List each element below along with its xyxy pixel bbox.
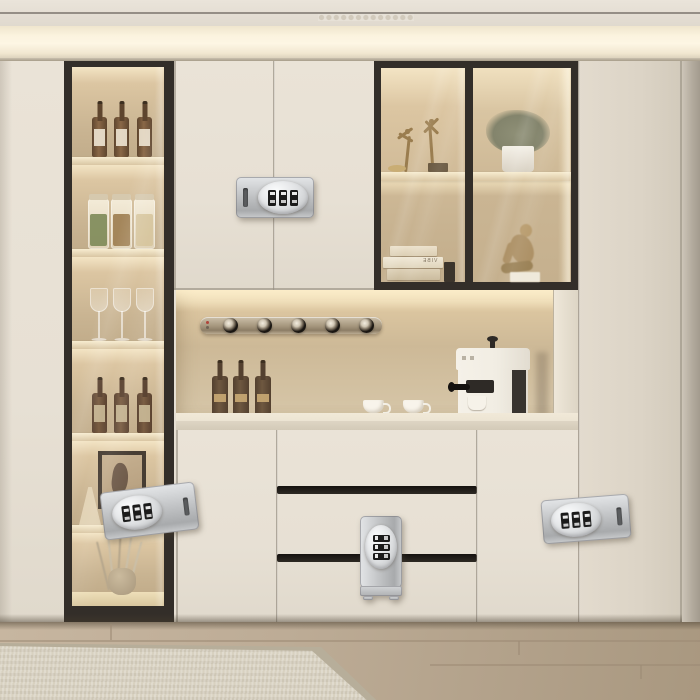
- door-seam: [476, 430, 478, 622]
- rail-detail-dots: [206, 321, 209, 324]
- shelf-board: [72, 157, 164, 165]
- niche-right-pillar: [553, 290, 578, 415]
- glass-stem: [98, 311, 100, 338]
- wine-bottle: [114, 117, 129, 157]
- storage-jar: [88, 199, 109, 249]
- lock-dial: [268, 190, 276, 206]
- glass-foot: [115, 338, 130, 341]
- counter-top: [176, 413, 578, 421]
- cove-light-strip: [0, 26, 700, 58]
- door-seam: [273, 61, 275, 290]
- plant-pot: [502, 146, 534, 172]
- group-head: [466, 380, 494, 393]
- jar-contents: [113, 214, 130, 246]
- wine-bottle: [137, 393, 152, 433]
- ceiling-bead-trim: [318, 14, 414, 21]
- lock-dial: [121, 505, 131, 522]
- wine-bottle: [137, 117, 152, 157]
- figurine-head: [405, 129, 410, 134]
- lock-dial: [132, 504, 142, 521]
- combination-lock-lower-right: [540, 494, 631, 545]
- lock-dial-face: [365, 525, 397, 569]
- glass-bowl: [113, 288, 131, 312]
- floor-plank-line: [430, 664, 700, 666]
- shelf-board: [72, 433, 164, 441]
- glass-foot: [92, 338, 107, 341]
- lock-dial: [571, 511, 580, 528]
- figurine-head: [429, 119, 434, 124]
- glass-stem: [121, 311, 123, 338]
- lock-foot: [360, 586, 402, 596]
- drawer-gap: [277, 486, 477, 494]
- figure-plinth: [510, 272, 540, 282]
- book: [390, 246, 437, 256]
- wine-glass: [136, 288, 154, 341]
- trinket-box: [428, 163, 448, 172]
- rail-knob: [325, 318, 340, 333]
- machine-wall-shadow: [536, 352, 548, 416]
- counter-front-edge: [176, 421, 578, 430]
- lock-dial: [279, 190, 287, 206]
- book-spine-text: VIBE: [422, 258, 437, 265]
- wall-rail: [200, 317, 382, 334]
- machine-top-knob: [487, 336, 498, 342]
- wine-bottle: [114, 393, 129, 433]
- wine-bottle: [92, 117, 107, 157]
- bookend: [444, 262, 455, 282]
- storage-jar: [134, 199, 155, 249]
- lock-dial: [373, 535, 390, 542]
- wine-bottle: [92, 393, 107, 433]
- rail-detail-dots: [206, 326, 209, 329]
- floor-plank-joint: [640, 665, 642, 679]
- drawer-stack-left-seam: [276, 430, 278, 622]
- storage-jar: [111, 199, 132, 249]
- book-stack: VIBE: [383, 246, 443, 282]
- book: [387, 269, 440, 280]
- rail-knob: [223, 318, 238, 333]
- lock-slot: [243, 188, 248, 207]
- glass-foot: [138, 338, 153, 341]
- photo-scene: VIBE: [0, 0, 700, 700]
- right-wall: [682, 61, 700, 638]
- book: VIBE: [383, 257, 443, 268]
- floor-plank-line: [0, 640, 700, 642]
- left-wall-shade: [0, 61, 12, 622]
- jar-contents: [136, 214, 153, 246]
- rail-knob: [257, 318, 272, 333]
- combination-lock-upper-center: [236, 177, 314, 218]
- wine-glass: [90, 288, 108, 341]
- shelf-board: [72, 341, 164, 349]
- rail-knob: [359, 318, 374, 333]
- lock-dial: [560, 512, 569, 529]
- lock-dial: [290, 190, 298, 206]
- floor-contact-shadow: [0, 622, 700, 630]
- machine-side-panel: [512, 370, 526, 418]
- machine-cup: [468, 396, 486, 410]
- lock-foot-tab: [363, 596, 373, 600]
- door-edge: [174, 61, 176, 290]
- shelf-board: [72, 249, 164, 257]
- lock-foot-tab: [389, 596, 399, 600]
- cup: [403, 400, 424, 413]
- jar-contents: [90, 214, 107, 246]
- lock-dial-face: [258, 181, 308, 214]
- shelf-underlight: [381, 181, 571, 196]
- lock-dial: [373, 544, 390, 551]
- combination-lock-lower-center: [360, 516, 402, 600]
- seated-figure-sculpture: [498, 224, 550, 282]
- wine-glass: [113, 288, 131, 341]
- cabinet-bottom-shadow: [0, 614, 682, 622]
- glass-bowl: [90, 288, 108, 312]
- lock-dial: [373, 553, 390, 560]
- portafilter-knob: [448, 382, 455, 392]
- cabinet-mullion: [465, 68, 473, 282]
- floor-plank-joint: [518, 641, 520, 655]
- lock-dial: [582, 511, 591, 528]
- floor-plank-joint: [110, 624, 112, 640]
- glass-bowl: [136, 288, 154, 312]
- cup: [363, 400, 384, 413]
- niche-top-glow: [176, 290, 578, 312]
- glass-stem: [144, 311, 146, 338]
- rail-knob: [291, 318, 306, 333]
- lock-dial: [143, 503, 153, 520]
- trinket-dish: [388, 165, 406, 172]
- vase: [108, 568, 136, 595]
- machine-buttons: [462, 356, 474, 360]
